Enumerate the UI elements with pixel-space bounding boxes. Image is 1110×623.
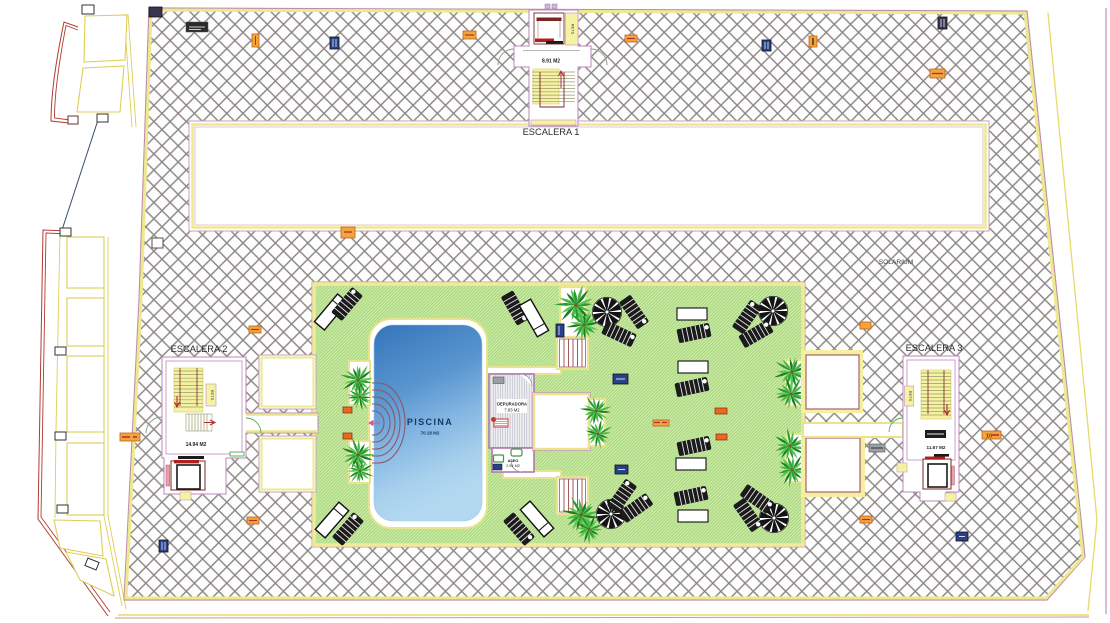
svg-text:RETS: RETS xyxy=(908,391,913,402)
svg-text:14.94 M2: 14.94 M2 xyxy=(186,442,207,448)
svg-text:10: 10 xyxy=(986,434,992,440)
svg-text:ESCALERA 2: ESCALERA 2 xyxy=(171,344,228,354)
svg-text:DEPURADORA: DEPURADORA xyxy=(497,402,527,407)
svg-text:8.91 M2: 8.91 M2 xyxy=(542,59,560,65)
svg-text:ESCALERA 3: ESCALERA 3 xyxy=(906,343,963,353)
svg-text:RETS: RETS xyxy=(571,24,576,35)
svg-text:2.94 M2: 2.94 M2 xyxy=(506,464,520,468)
svg-text:ESCALERA 1: ESCALERA 1 xyxy=(523,127,580,137)
svg-text:SOLARIUM: SOLARIUM xyxy=(879,259,913,266)
svg-text:70.18 M2: 70.18 M2 xyxy=(421,431,440,436)
svg-text:PISCINA: PISCINA xyxy=(407,417,453,427)
svg-text:7.83 M2: 7.83 M2 xyxy=(504,408,520,413)
svg-text:11.67 M2: 11.67 M2 xyxy=(927,445,946,450)
svg-text:ASEO: ASEO xyxy=(508,459,519,463)
svg-text:RETS: RETS xyxy=(210,390,215,401)
